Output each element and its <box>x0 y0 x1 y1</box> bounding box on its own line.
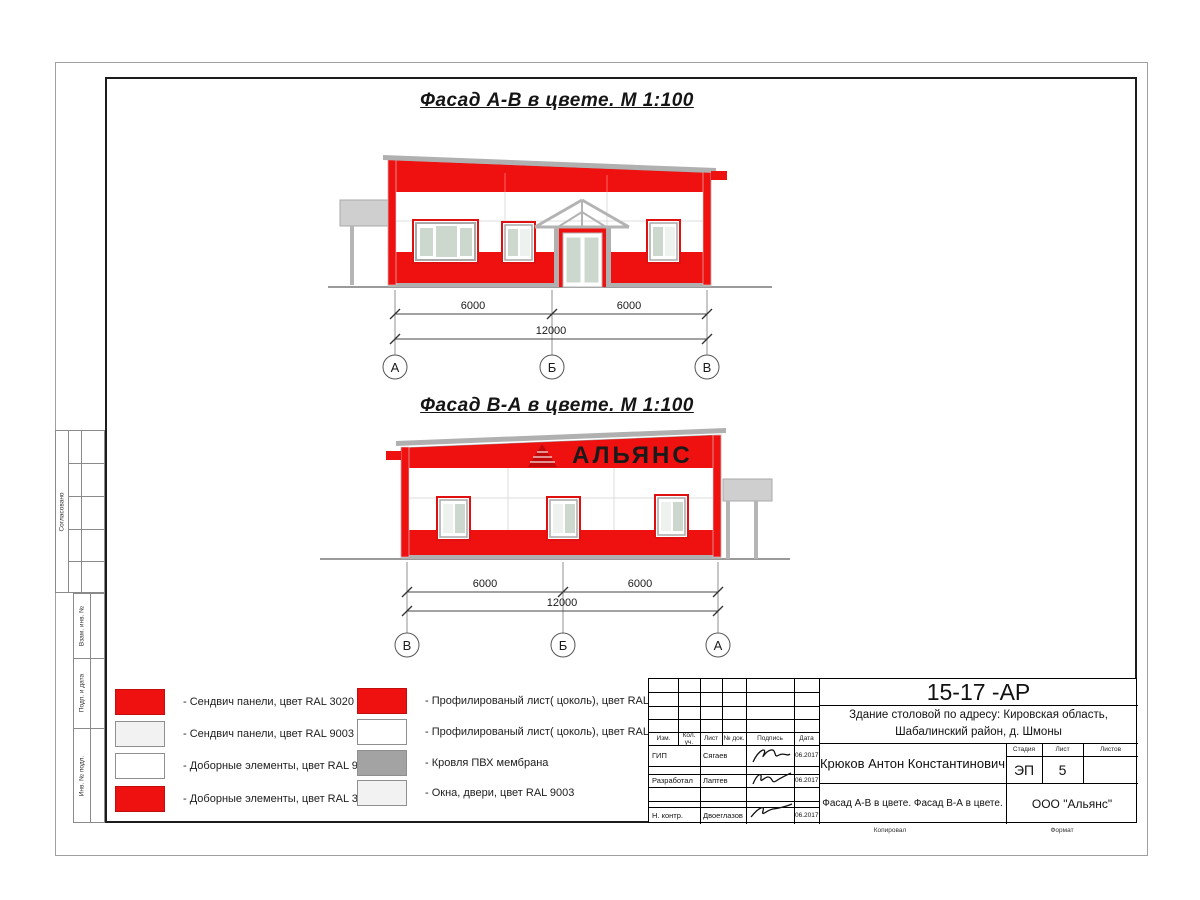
legend-swatch-gray <box>357 750 407 776</box>
axis-marker-a: А <box>383 355 407 379</box>
format-label: Формат <box>1030 827 1094 834</box>
dim-6000-left: 6000 <box>461 300 485 312</box>
window-2 <box>547 497 580 540</box>
legend-item: - Доборные элементы, цвет RAL 9003 <box>115 752 376 779</box>
legend-swatch-red <box>357 688 407 714</box>
signature-gip <box>749 745 793 766</box>
facade-ab-building <box>328 155 772 287</box>
window-3 <box>647 220 680 263</box>
row-ncontr-role: Н. контр. <box>652 811 683 820</box>
col-header-kol: Кол. уч. <box>678 732 700 745</box>
legend-item: - Профилированый лист( цоколь), цвет RAL… <box>357 687 676 714</box>
legend-swatch-red <box>115 786 165 812</box>
legend-item: - Кровля ПВХ мембрана <box>357 749 548 776</box>
signature-ncontr <box>747 801 795 822</box>
window-2 <box>502 222 535 263</box>
legend-item: - Окна, двери, цвет RAL 9003 <box>357 779 574 806</box>
svg-text:А: А <box>714 638 723 653</box>
row-gip-date: 06.2017 <box>795 752 819 759</box>
dim-6000-right: 6000 <box>617 300 641 312</box>
row-dev-date: 06.2017 <box>795 777 819 784</box>
svg-text:В: В <box>703 360 712 375</box>
col-header-podpis: Подпись <box>746 732 794 745</box>
legend-label: - Сендвич панели, цвет RAL 3020 <box>183 696 354 708</box>
legend-label: - Профилированый лист( цоколь), цвет RAL… <box>425 726 676 738</box>
col-header-ndok: № док. <box>722 732 746 745</box>
dim-12000: 12000 <box>547 597 578 609</box>
object-name-line2: Шабалинский район, д. Шмоны <box>895 724 1062 741</box>
company-name: ООО "Альянс" <box>1006 783 1138 824</box>
row-gip-role: ГИП <box>652 751 667 760</box>
legend-swatch-red <box>115 689 165 715</box>
stage-value: ЭП <box>1006 756 1042 783</box>
legend-item: - Сендвич панели, цвет RAL 9003 <box>115 720 354 747</box>
axis-marker-v: В <box>395 633 419 657</box>
dim-6000-right: 6000 <box>628 578 652 590</box>
facade-ba-drawing: АЛЬЯНС <box>320 425 790 670</box>
window-large <box>413 220 478 263</box>
legend-label: - Доборные элементы, цвет RAL 9003 <box>183 760 376 772</box>
legend-swatch-white <box>115 753 165 779</box>
facade-ba-dimensions: 6000 6000 12000 В Б А <box>395 562 730 657</box>
svg-text:Б: Б <box>548 360 557 375</box>
inventory-strip: Взам. инв. № Подп. и дата Инв. № подл. <box>73 593 105 823</box>
sheet-name: Фасад А-В в цвете. Фасад В-А в цвете. <box>819 783 1006 824</box>
vzam-inv-label: Взам. инв. № <box>79 606 86 646</box>
alyans-watermark-text: АЛЬЯНС <box>572 442 693 469</box>
row-dev-role: Разработал <box>652 776 693 785</box>
approval-strip: Согласовано <box>55 430 105 593</box>
dim-12000: 12000 <box>536 325 567 337</box>
podp-data-label: Подп. и дата <box>79 674 86 712</box>
axis-marker-a: А <box>706 633 730 657</box>
row-ncontr-name: Двоеглазов <box>703 811 743 820</box>
legend-label: - Окна, двери, цвет RAL 9003 <box>425 787 574 799</box>
legend-label: - Доборные элементы, цвет RAL 3020 <box>183 793 376 805</box>
row-dev-name: Лаптев <box>703 776 728 785</box>
facade-ba-building: АЛЬЯНС <box>320 428 790 559</box>
legend-item: - Сендвич панели, цвет RAL 3020 <box>115 688 354 715</box>
list-label: Лист <box>1042 743 1083 756</box>
axis-marker-v: В <box>695 355 719 379</box>
legend-swatch-lightgray <box>115 721 165 747</box>
legend-label: - Сендвич панели, цвет RAL 9003 <box>183 728 354 740</box>
copied-label: Копировал <box>855 827 925 834</box>
author-name: Крюков Антон Константинович <box>819 743 1006 783</box>
approved-label: Согласовано <box>59 492 66 531</box>
col-header-data: Дата <box>794 732 819 745</box>
stage-label: Стадия <box>1006 743 1042 756</box>
svg-text:В: В <box>403 638 412 653</box>
row-gip-name: Сягаев <box>703 751 727 760</box>
sheet-number: 5 <box>1042 756 1083 783</box>
dim-6000-left: 6000 <box>473 578 497 590</box>
col-header-list: Лист <box>700 732 722 745</box>
legend-label: - Кровля ПВХ мембрана <box>425 757 548 769</box>
col-header-izm: Изм. <box>649 732 678 745</box>
signature-dev <box>749 769 793 788</box>
legend-swatch-lightgray <box>357 780 407 806</box>
axis-marker-b: Б <box>551 633 575 657</box>
sheets-total <box>1083 756 1138 783</box>
doc-code: 15-17 -АР <box>819 679 1138 705</box>
window-1 <box>437 497 470 540</box>
listov-label: Листов <box>1083 743 1138 756</box>
facade-ba-title: Фасад В-А в цвете. М 1:100 <box>327 395 787 417</box>
axis-marker-b: Б <box>540 355 564 379</box>
facade-ab-title: Фасад А-В в цвете. М 1:100 <box>327 90 787 112</box>
legend-label: - Профилированый лист( цоколь), цвет RAL… <box>425 695 676 707</box>
window-3 <box>655 495 688 538</box>
svg-text:А: А <box>391 360 400 375</box>
inv-podl-label: Инв. № подл. <box>79 756 86 797</box>
facade-ab-dimensions: 6000 6000 12000 А Б В <box>383 290 719 379</box>
legend-item: - Доборные элементы, цвет RAL 3020 <box>115 785 376 812</box>
title-block: Изм. Кол. уч. Лист № док. Подпись Дата Г… <box>648 678 1137 823</box>
legend-item: - Профилированый лист( цоколь), цвет RAL… <box>357 718 676 745</box>
legend-swatch-white <box>357 719 407 745</box>
facade-ab-drawing: 6000 6000 12000 А Б В <box>320 140 780 385</box>
row-ncontr-date: 06.2017 <box>795 812 819 819</box>
object-name-line1: Здание столовой по адресу: Кировская обл… <box>849 707 1108 724</box>
object-name: Здание столовой по адресу: Кировская обл… <box>819 705 1138 743</box>
svg-text:Б: Б <box>559 638 568 653</box>
drawing-sheet: Фасад А-В в цвете. М 1:100 Фасад В-А в ц… <box>0 0 1200 900</box>
